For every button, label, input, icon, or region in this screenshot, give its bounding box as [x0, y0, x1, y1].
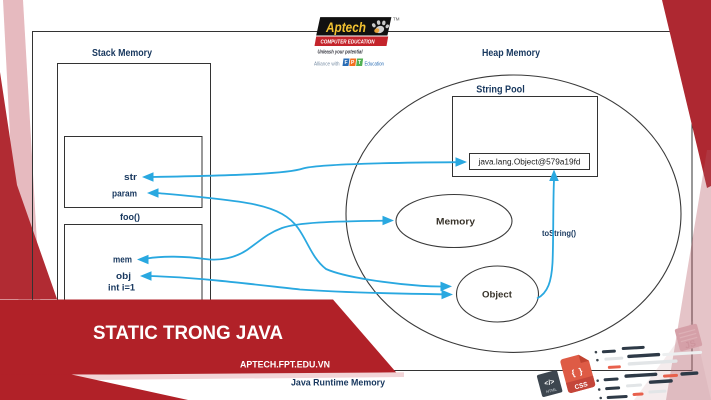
- svg-text:toString(): toString(): [542, 228, 576, 238]
- svg-text:Education: Education: [365, 61, 385, 67]
- svg-text:Aptech: Aptech: [325, 20, 366, 35]
- svg-text:Unleash your potential: Unleash your potential: [318, 49, 363, 55]
- svg-text:COMPUTER EDUCATION: COMPUTER EDUCATION: [321, 40, 375, 46]
- svg-text:APTECH.FPT.EDU.VN: APTECH.FPT.EDU.VN: [240, 360, 330, 370]
- svg-text:T: T: [358, 60, 361, 66]
- svg-text:Java Runtime Memory: Java Runtime Memory: [291, 378, 386, 389]
- svg-text:String Pool: String Pool: [476, 85, 525, 96]
- svg-text:str: str: [124, 172, 138, 182]
- svg-text:F: F: [345, 60, 348, 66]
- svg-text:Alliance with: Alliance with: [314, 61, 340, 67]
- svg-text:Heap Memory: Heap Memory: [482, 48, 540, 59]
- svg-text:int i=1: int i=1: [108, 283, 135, 293]
- svg-text:obj: obj: [116, 271, 131, 281]
- svg-text:STATIC TRONG JAVA: STATIC TRONG JAVA: [93, 323, 283, 344]
- svg-text:mem: mem: [113, 255, 132, 265]
- svg-text:foo(): foo(): [120, 212, 140, 222]
- svg-text:Object: Object: [482, 290, 512, 300]
- svg-text:TM: TM: [393, 17, 400, 22]
- svg-text:Memory: Memory: [436, 217, 475, 227]
- svg-text:Stack Memory: Stack Memory: [92, 48, 152, 59]
- svg-text:param: param: [112, 189, 137, 199]
- svg-text:java.lang.Object@579a19fd: java.lang.Object@579a19fd: [477, 158, 580, 167]
